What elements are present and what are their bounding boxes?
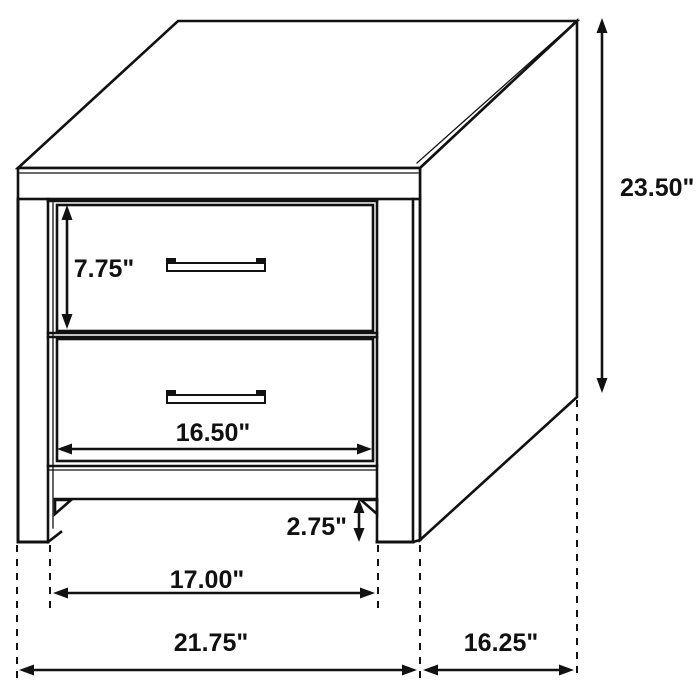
- dimension-label: 17.00": [170, 566, 244, 594]
- arrowhead-right-icon: [402, 665, 417, 676]
- dim-overall-width: 21.75": [19, 629, 417, 676]
- arrowhead-up-icon: [597, 18, 608, 33]
- dim-base-height: 2.75": [286, 499, 364, 542]
- dim-overall-depth: 16.25": [423, 629, 574, 676]
- arrowhead-left-icon: [423, 665, 438, 676]
- arrowhead-down-icon: [354, 528, 365, 542]
- dimension-label: 7.75": [74, 255, 135, 283]
- arrowhead-left-icon: [53, 588, 68, 599]
- arrowhead-right-icon: [559, 665, 574, 676]
- dimension-label: 16.50": [176, 419, 250, 447]
- left-base-bracket: [55, 500, 71, 514]
- dimension-label: 16.25": [464, 629, 538, 657]
- arrowhead-left-icon: [19, 665, 34, 676]
- handle-bar: [167, 263, 265, 271]
- dim-overall-height: 23.50": [597, 18, 695, 393]
- left-leg-bevel-line: [48, 532, 61, 542]
- arrowhead-right-icon: [360, 588, 375, 599]
- dimension-label: 21.75": [174, 629, 248, 657]
- diagram-canvas: 23.50" 7.75" 16.50" 2.75" 17: [0, 0, 700, 700]
- dim-inner-leg-span: 17.00": [53, 566, 375, 599]
- handle-bar: [167, 395, 265, 403]
- dimension-label: 2.75": [286, 513, 347, 541]
- dimension-label: 23.50": [620, 174, 694, 202]
- arrowhead-down-icon: [597, 378, 608, 393]
- nightstand-dimension-diagram: 23.50" 7.75" 16.50" 2.75" 17: [0, 0, 700, 700]
